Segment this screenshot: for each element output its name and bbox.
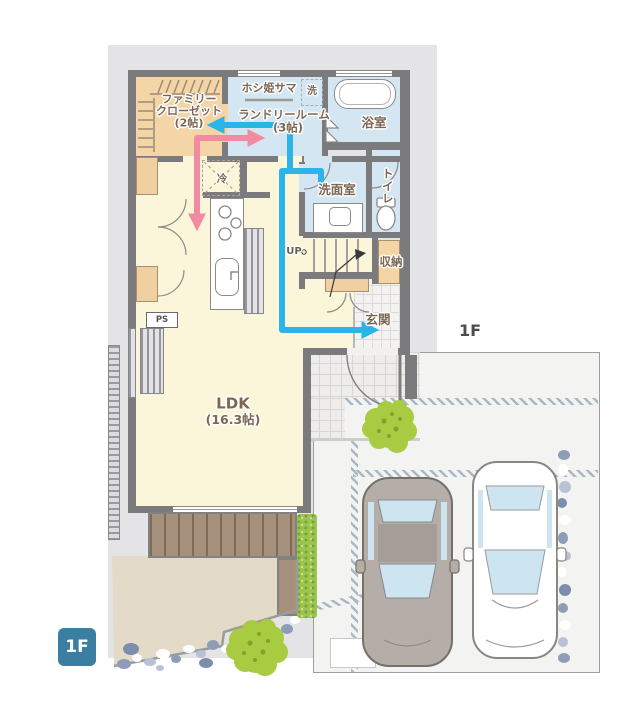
wall-hall-stub xyxy=(299,279,305,289)
bathtub-inner xyxy=(339,83,391,105)
window xyxy=(336,70,392,77)
label-stairs-up: UP xyxy=(286,247,301,257)
room-label-storage: 収納 xyxy=(380,256,403,268)
driveway-joint-strip xyxy=(353,470,598,477)
room-label-laundry-size: (3帖) xyxy=(273,122,303,134)
label-hoshihime-sama: ホシ姫サマ xyxy=(242,83,297,94)
window xyxy=(238,70,280,77)
room-label-ldk-size: (16.3帖) xyxy=(206,414,261,427)
wood-deck-step xyxy=(277,558,299,616)
wall-storage-left xyxy=(372,238,378,284)
door-opening xyxy=(299,164,305,192)
door-opening xyxy=(222,104,228,142)
room-label-washroom: 洗面室 xyxy=(318,184,356,197)
entrance-porch-tile xyxy=(308,352,420,398)
wood-deck xyxy=(148,512,297,558)
wall-right xyxy=(400,70,410,355)
hedge xyxy=(297,514,317,618)
window-ldk-left xyxy=(128,328,136,398)
floor-area-label: 1F xyxy=(459,323,481,339)
room-label-family-closet-line2: クローゼット xyxy=(156,106,222,117)
wall-fridge-right xyxy=(240,156,247,196)
porch-step-edge xyxy=(308,438,420,441)
stepping-stone xyxy=(330,638,376,668)
label-pipe-space: PS xyxy=(156,316,168,325)
floor-plan-page: ファミリー クローゼット (2帖) ホシ姫サマ 洗 ランドリールーム (3帖) … xyxy=(0,0,636,720)
driveway-joint-strip xyxy=(314,398,598,405)
room-label-ldk: LDK xyxy=(216,397,250,412)
kitchen-closet xyxy=(136,266,158,302)
kitchen-counter-panel xyxy=(244,228,264,314)
wall-ldk-right xyxy=(303,352,311,512)
front-door-opening xyxy=(347,348,398,355)
hall-step-line xyxy=(353,307,355,350)
boundary-fence xyxy=(108,345,120,540)
door-opening xyxy=(278,156,302,162)
label-refrigerator: 冷 xyxy=(217,174,228,185)
room-label-entrance: 玄関 xyxy=(365,314,390,327)
room-label-laundry: ランドリールーム xyxy=(238,109,330,121)
room-label-family-closet-line1: ファミリー xyxy=(162,94,217,105)
approach-tile xyxy=(308,398,345,440)
wall-porch-side xyxy=(405,355,417,399)
door-opening xyxy=(304,156,332,162)
wall-left xyxy=(128,70,136,512)
kitchen-closet xyxy=(136,157,158,195)
wall-bath-bottom xyxy=(328,142,410,150)
room-label-toilet: トイレ xyxy=(381,167,393,205)
room-label-family-closet-size: (2帖) xyxy=(175,118,204,129)
floor-stairs xyxy=(303,238,372,272)
kitchen-sink xyxy=(215,258,239,296)
room-label-bathroom: 浴室 xyxy=(361,117,386,130)
window-ldk-bay xyxy=(140,328,164,394)
wall-washroom-toilet xyxy=(366,150,372,236)
vanity-bowl xyxy=(329,207,351,226)
wall-stairs-bottom xyxy=(299,272,378,279)
label-washing-machine: 洗 xyxy=(307,87,317,97)
floor-badge: 1F xyxy=(58,628,96,666)
